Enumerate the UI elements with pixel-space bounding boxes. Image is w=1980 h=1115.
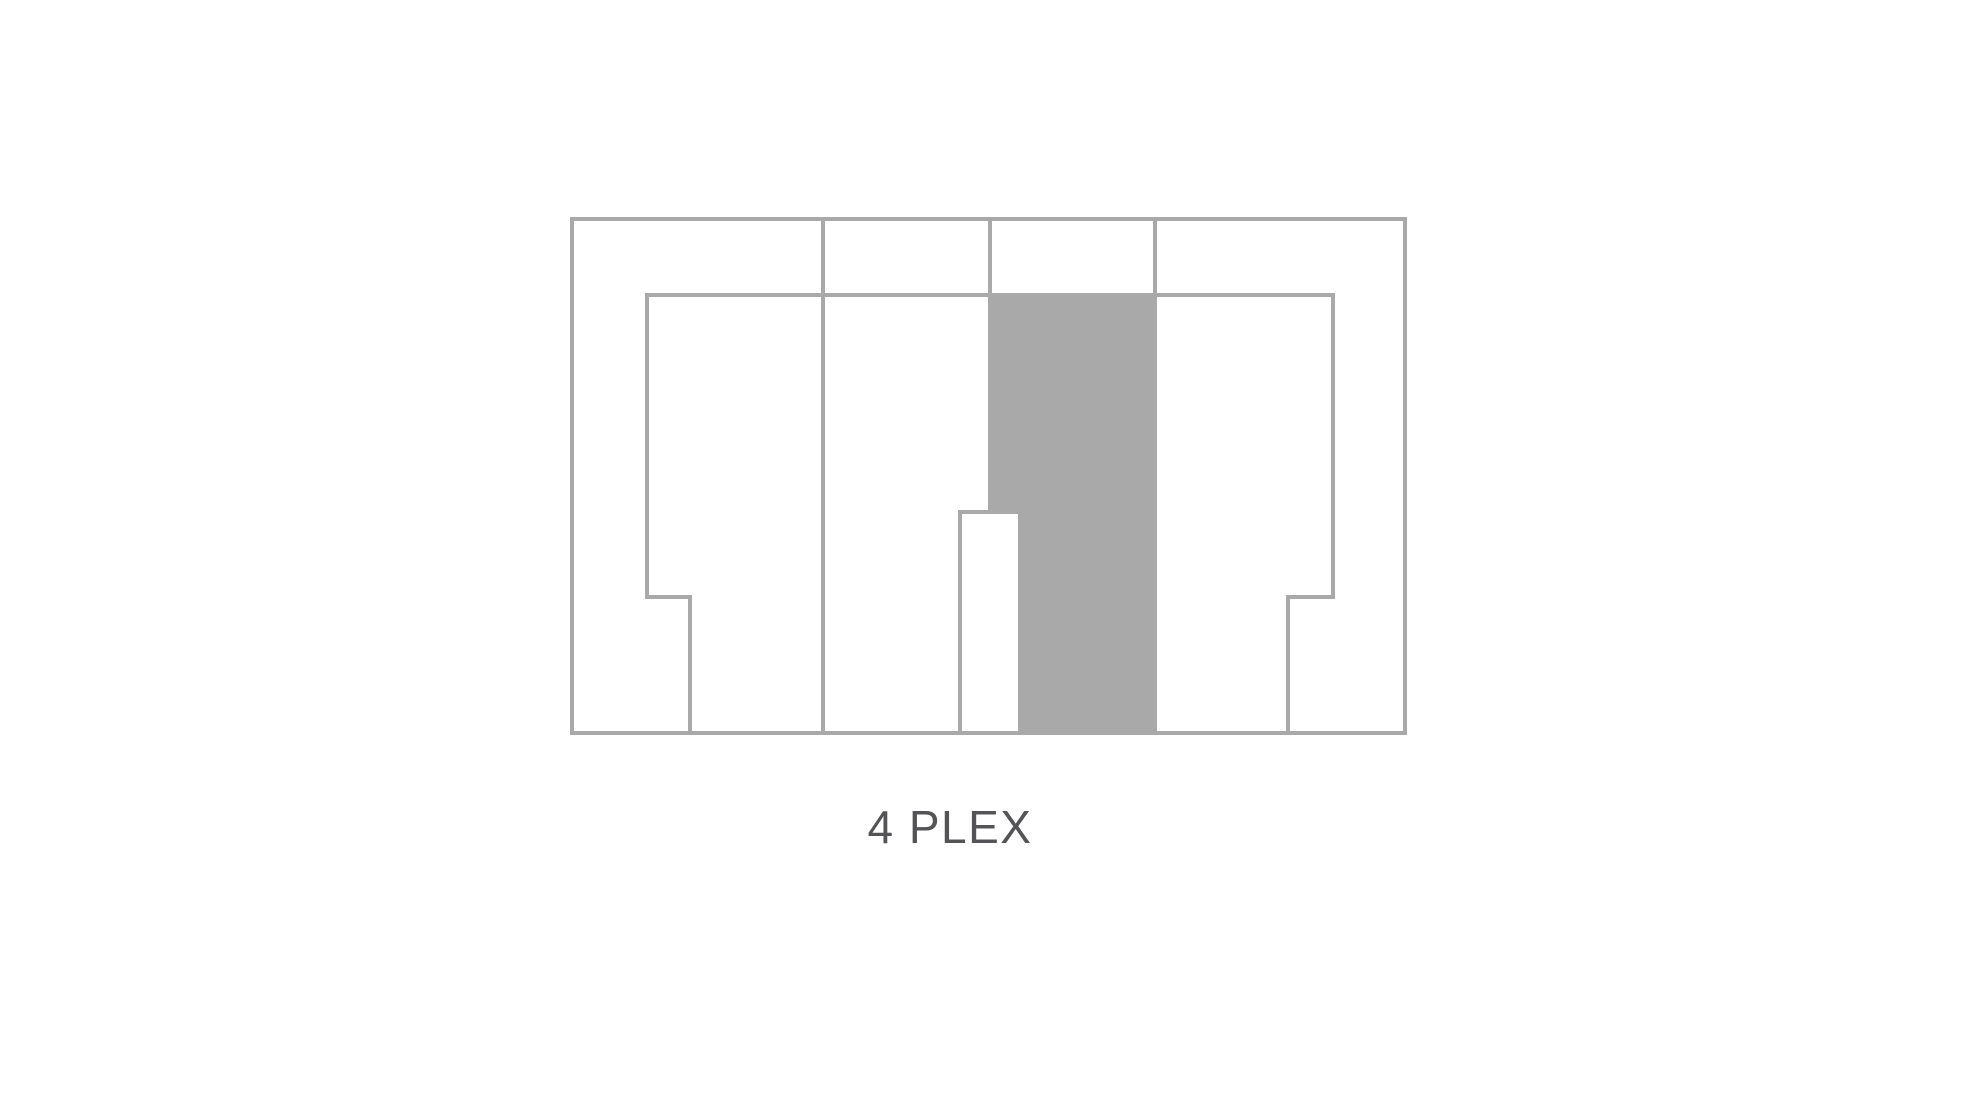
fourplex-floorplan-diagram: 4 PLEX bbox=[0, 0, 1980, 1115]
diagram-caption: 4 PLEX bbox=[868, 801, 1033, 853]
stub-notch-interior bbox=[960, 512, 1018, 733]
floorplan-page: 4 PLEX bbox=[0, 0, 1980, 1115]
